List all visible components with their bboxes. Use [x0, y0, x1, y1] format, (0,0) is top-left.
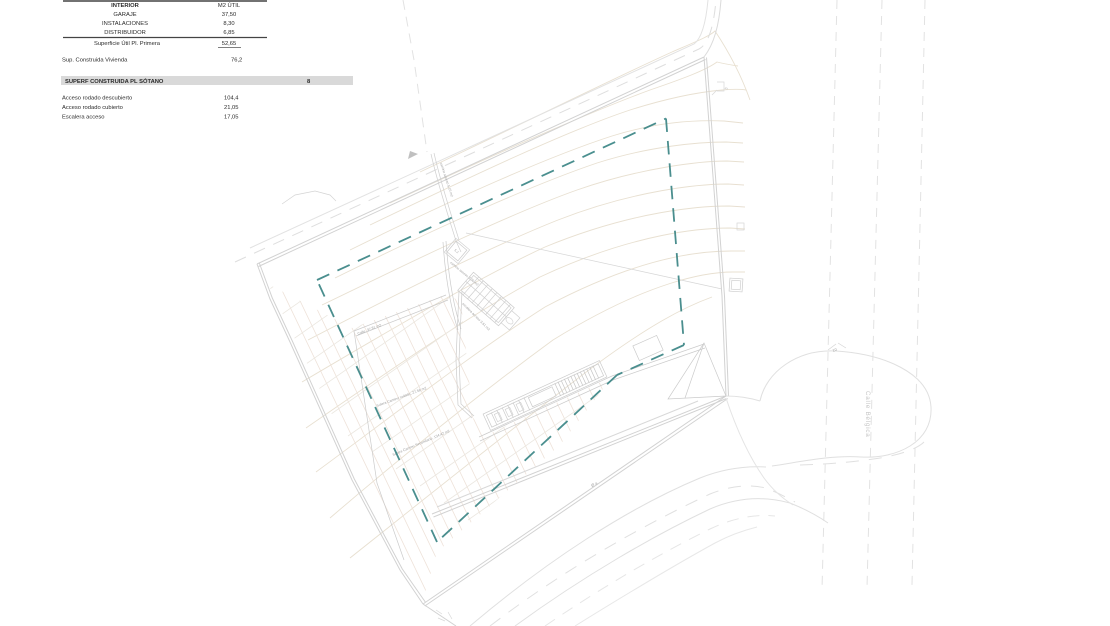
svg-text:52,65: 52,65 [222, 41, 237, 47]
svg-text:SUPERF CONSTRUIDA PL SÓTANO: SUPERF CONSTRUIDA PL SÓTANO [65, 77, 164, 85]
svg-text:DISTRIBUIDOR: DISTRIBUIDOR [104, 30, 146, 36]
svg-text:76,2: 76,2 [231, 58, 242, 64]
svg-text:INTERIOR: INTERIOR [111, 3, 140, 9]
svg-text:GARAJE: GARAJE [113, 12, 136, 18]
svg-text:10: 10 [832, 346, 839, 352]
svg-text:Solera Camino Secundario, 134,: Solera Camino Secundario, 134,42 m2 [392, 429, 451, 457]
svg-text:Acceso rodado descubierto: Acceso rodado descubierto [62, 96, 132, 102]
svg-text:Calle Bélgica: Calle Bélgica [864, 391, 871, 438]
svg-text:Acceso rodado cubierto: Acceso rodado cubierto [62, 105, 123, 111]
svg-text:17,05: 17,05 [224, 115, 239, 121]
svg-text:Superficie Útil Pl. Primera: Superficie Útil Pl. Primera [94, 40, 161, 47]
svg-text:5.2: 5.2 [453, 248, 459, 254]
svg-text:INSTALACIONES: INSTALACIONES [102, 21, 148, 27]
svg-text:21,05: 21,05 [224, 105, 239, 111]
svg-text:M2 ÚTIL: M2 ÚTIL [218, 2, 241, 9]
svg-text:104,4: 104,4 [224, 96, 239, 102]
svg-text:Sup. Construida Vivienda: Sup. Construida Vivienda [62, 58, 128, 64]
svg-text:8,30: 8,30 [223, 21, 234, 27]
svg-text:Ø a: Ø a [590, 480, 599, 488]
svg-text:Escalera acceso: Escalera acceso [62, 115, 105, 121]
svg-text:37,50: 37,50 [222, 12, 237, 18]
svg-text:6,85: 6,85 [223, 30, 234, 36]
